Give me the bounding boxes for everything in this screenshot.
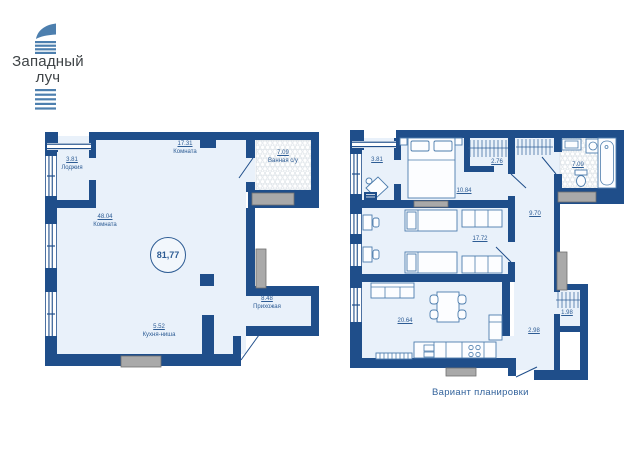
- radiator-icon: [376, 353, 412, 359]
- window-icon: [351, 214, 361, 234]
- double-bed-icon: [400, 138, 462, 198]
- loggia-glazing-window-icon: [352, 141, 396, 148]
- room-label-hallway: 8.48 Прихожая: [253, 296, 281, 311]
- brand-sail-icon: [33, 22, 59, 56]
- room-label-bedroom: 10.84: [456, 188, 471, 196]
- room-label-bathroom: 7.09 Ванная с/у: [266, 150, 300, 165]
- window-icon: [351, 288, 361, 322]
- real-estate-floorplan-page: Западный луч: [0, 0, 644, 470]
- room-label-entry-hall: 2.98: [528, 328, 540, 336]
- brand-name-line2: луч: [4, 70, 92, 86]
- window-icon: [351, 244, 361, 266]
- window-icon: [46, 224, 56, 268]
- room-label-kitchen-living: 20.64: [397, 318, 412, 326]
- room-label-bathroom: 7.09: [572, 162, 584, 170]
- window-icon: [351, 154, 361, 194]
- floorplan-variant: 3.81 10.84 2.76 7.09 9.70 17.72 20.64 1.…: [350, 126, 640, 382]
- brand-name: Западный луч: [4, 54, 92, 86]
- room-label-closet: 2.76: [491, 159, 503, 167]
- window-icon: [46, 156, 56, 196]
- brand-stripes-icon: [33, 89, 59, 113]
- room-label-komnata-top: 17.31 Комната: [173, 141, 197, 156]
- room-label-loggia: 3.81: [371, 157, 383, 165]
- room-label-kitchen-niche: 5.52 Кухня-ниша: [143, 324, 176, 339]
- room-label-komnata-main: 48.04 Комната: [93, 214, 117, 229]
- window-icon: [46, 292, 56, 336]
- loggia-glazing-window-icon: [47, 143, 91, 150]
- room-label-loggia: 3.81 Лоджия: [61, 157, 82, 172]
- bathtub-icon: [598, 138, 616, 188]
- sofa-icon: [371, 283, 414, 298]
- variant-caption: Вариант планировки: [432, 387, 529, 398]
- room-label-storage: 1.98: [561, 310, 573, 318]
- sink-icon: [562, 139, 581, 150]
- toilet-icon: [575, 170, 587, 187]
- brand-name-line1: Западный: [4, 54, 92, 70]
- kitchen-counter-icon: [414, 342, 496, 358]
- hex-tile-floor: [256, 140, 311, 190]
- total-area-badge: 81,77: [150, 237, 186, 273]
- room-label-hall: 9.70: [529, 211, 541, 219]
- fridge-icon: [489, 315, 502, 340]
- room-label-room2: 17.72: [472, 236, 487, 244]
- floorplan-original: 17.31 Комната 3.81 Лоджия 48.04 Комната …: [45, 128, 325, 374]
